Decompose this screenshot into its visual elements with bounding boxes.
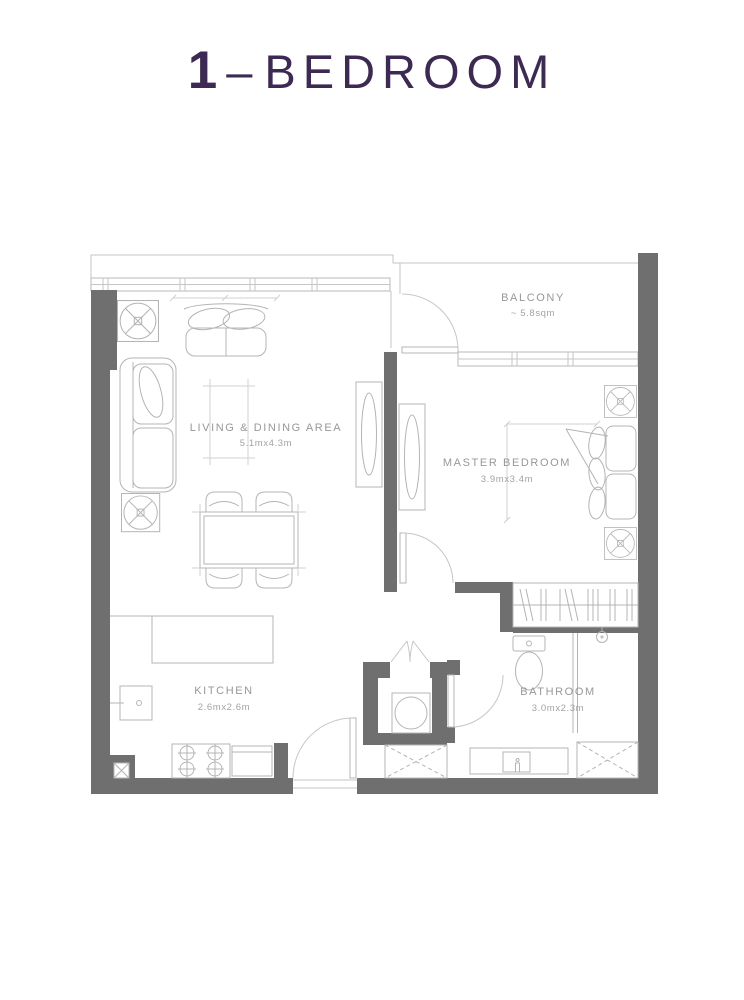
- wall-left-upper: [91, 290, 117, 370]
- bathroom-label: BATHROOM: [520, 686, 596, 698]
- kitchen-label: KITCHEN: [194, 685, 253, 697]
- wall-closet-bottom: [363, 733, 447, 745]
- wall-bath-jamb-bottom: [440, 727, 455, 743]
- bedroom-door: [400, 533, 453, 583]
- wall-closet-top-left: [363, 662, 390, 678]
- wall-right: [638, 253, 658, 794]
- wall-closet-top-right: [430, 662, 447, 678]
- ceiling-fan-icon: [604, 527, 636, 559]
- ceiling-fan-icon: [121, 493, 159, 531]
- shaft-bathroom: [577, 742, 638, 778]
- ceiling-fan-icon: [604, 385, 636, 417]
- closet-double-doors: [391, 641, 429, 662]
- kitchen-counter: [110, 616, 273, 663]
- wall-wardrobe-west: [500, 593, 513, 632]
- vanity: [470, 748, 568, 774]
- tv-console-bedroom: [399, 404, 425, 510]
- master-dims: 3.9mx3.4m: [481, 474, 533, 485]
- floorplan-page: 1–BEDROOM: [0, 0, 744, 1000]
- bedroom-window: [458, 352, 638, 366]
- bathroom-door: [448, 675, 503, 727]
- shaft-kitchen: [114, 763, 129, 778]
- wall-bedroom-south: [455, 582, 513, 593]
- wall-kitchen-stub: [274, 743, 288, 778]
- wall-left-lower: [91, 370, 110, 755]
- dining-table: [192, 492, 306, 588]
- lounge-sofa: [120, 358, 176, 492]
- fridge: [232, 746, 272, 776]
- wall-bath-jamb-top: [447, 660, 460, 675]
- ceiling-fan-icon: [118, 301, 159, 342]
- balcony-label: BALCONY: [501, 292, 565, 304]
- shower-glass: [573, 633, 578, 733]
- master-label: MASTER BEDROOM: [443, 457, 571, 469]
- kitchen-sink: [110, 686, 152, 720]
- stove: [172, 744, 230, 778]
- wall-divider: [384, 352, 397, 592]
- wall-bottom-right: [357, 778, 658, 794]
- shaft-hall: [385, 745, 447, 778]
- balcony-door: [402, 294, 458, 353]
- tv-console-living: [356, 382, 382, 487]
- sofa: [184, 304, 268, 356]
- living-window: [91, 278, 390, 291]
- kitchen-dims: 2.6mx2.6m: [198, 702, 250, 713]
- bathroom-dims: 3.0mx2.3m: [532, 703, 584, 714]
- toilet: [513, 636, 545, 690]
- washing-machine: [392, 693, 430, 733]
- entry-door: [293, 718, 357, 788]
- wall-bottom-left: [91, 778, 293, 794]
- wardrobe: [513, 583, 638, 627]
- balcony-area: ~ 5.8sqm: [511, 308, 555, 319]
- living-label: LIVING & DINING AREA: [190, 422, 342, 434]
- bed: [566, 426, 636, 520]
- floorplan-drawing: BALCONY ~ 5.8sqm LIVING & DINING AREA 5.…: [0, 0, 744, 1000]
- wall-wardrobe-south: [513, 627, 638, 633]
- living-dims: 5.1mx4.3m: [240, 438, 292, 449]
